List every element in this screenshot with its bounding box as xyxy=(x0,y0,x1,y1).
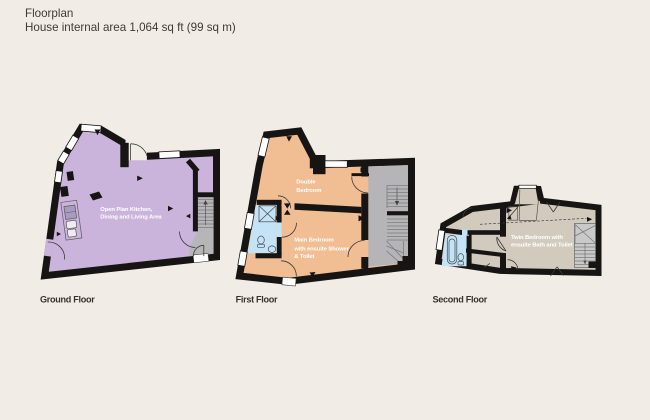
svg-text:with ensuite Shower: with ensuite Shower xyxy=(293,247,349,253)
svg-text:First Floor: First Floor xyxy=(236,294,278,304)
svg-text:Double: Double xyxy=(296,179,316,185)
svg-text:Dining and Living Area: Dining and Living Area xyxy=(100,214,162,220)
svg-text:Open Plan Kitchen,: Open Plan Kitchen, xyxy=(100,207,152,213)
svg-text:& Toilet: & Toilet xyxy=(294,254,314,260)
svg-text:Twin Bedroom with: Twin Bedroom with xyxy=(511,235,563,241)
svg-text:Main Bedroom: Main Bedroom xyxy=(294,238,333,244)
svg-text:Ground Floor: Ground Floor xyxy=(40,294,95,304)
svg-text:Second Floor: Second Floor xyxy=(433,294,488,304)
svg-text:ensuite Bath and Toilet: ensuite Bath and Toilet xyxy=(511,242,573,248)
svg-text:Bedroom: Bedroom xyxy=(296,188,321,194)
